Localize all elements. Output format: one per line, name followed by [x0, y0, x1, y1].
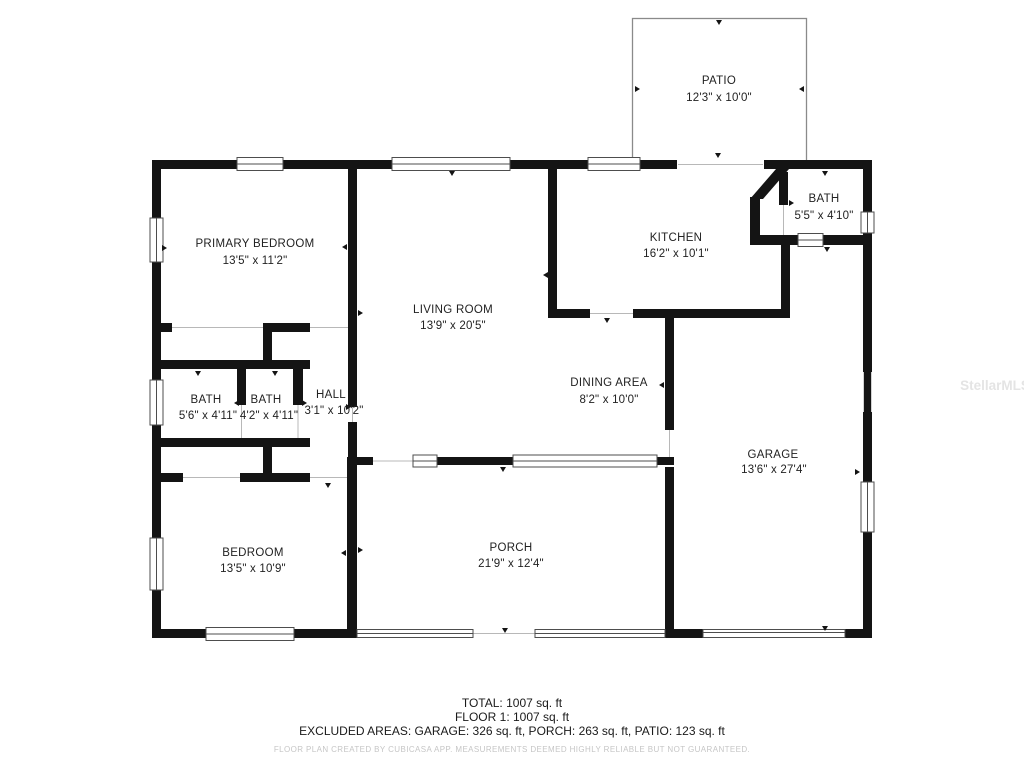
- wall-kitchen-ne: [750, 197, 760, 235]
- wall-porch-north-a: [437, 457, 513, 465]
- room-dims-living-room: 13'9" x 20'5": [420, 320, 486, 332]
- room-label-living-room: LIVING ROOM: [413, 304, 493, 316]
- window-kitchen-top: [588, 158, 640, 171]
- summary-excluded: EXCLUDED AREAS: GARAGE: 326 sq. ft, PORC…: [299, 724, 725, 738]
- wall-porch-north-stub: [357, 457, 373, 465]
- patio-outline: [633, 19, 807, 162]
- room-label-kitchen: KITCHEN: [650, 232, 703, 244]
- window-bath-left: [150, 380, 163, 425]
- room-label-primary-bedroom: PRIMARY BEDROOM: [195, 238, 314, 250]
- room-dims-bedroom: 13'5" x 10'9": [220, 563, 286, 575]
- room-label-hall: HALL: [316, 389, 346, 401]
- garage-door: [703, 630, 845, 638]
- room-dims-hall: 3'1" x 10'2": [304, 405, 363, 417]
- room-dims-bath-2: 4'2" x 4'11": [240, 410, 298, 422]
- wall-bath-divider: [237, 369, 246, 405]
- room-dims-bath-tr: 5'5" x 4'10": [794, 210, 853, 222]
- room-dims-dining-area: 8'2" x 10'0": [579, 394, 638, 406]
- room-label-garage: GARAGE: [747, 449, 798, 461]
- window-bath-tr-bottom: [798, 234, 823, 247]
- room-dims-porch: 21'9" x 12'4": [478, 558, 544, 570]
- wall-porch-west: [347, 457, 357, 629]
- area-summary: TOTAL: 1007 sq. ft FLOOR 1: 1007 sq. ft …: [274, 696, 750, 754]
- room-label-bath-1: BATH: [190, 394, 221, 406]
- window-living-top: [392, 158, 510, 171]
- floor-plan-page: PATIO 12'3" x 10'0" PRIMARY BEDROOM 13'5…: [0, 0, 1024, 768]
- room-label-porch: PORCH: [489, 542, 532, 554]
- wall-garage-west-lower: [665, 467, 674, 629]
- wall-garage-west-upper: [665, 313, 674, 430]
- room-label-bath-2: BATH: [250, 394, 281, 406]
- wall-hall-west: [293, 369, 303, 405]
- wall-kitchen-south-b: [633, 309, 790, 318]
- room-label-patio: PATIO: [702, 75, 736, 87]
- wall-bedroom-north-b: [240, 473, 310, 482]
- room-label-bath-tr: BATH: [808, 193, 839, 205]
- room-label-bedroom: BEDROOM: [222, 547, 284, 559]
- summary-total: TOTAL: 1007 sq. ft: [462, 696, 563, 710]
- wall-kitchen-south-a: [548, 309, 590, 318]
- stellar-mls-watermark: StellarMLS: [960, 378, 1024, 393]
- wall-bottom-garage-left: [665, 629, 703, 638]
- window-bath-tr-right: [861, 212, 874, 233]
- wall-baths-south: [152, 438, 310, 447]
- wall-living-west-lower: [348, 422, 357, 457]
- wall-bedroom-north-a: [152, 473, 183, 482]
- room-dims-garage: 13'6" x 27'4": [741, 464, 807, 476]
- window-pb-left: [150, 218, 163, 262]
- wall-living-west-upper: [348, 169, 357, 407]
- wall-garage-top-stub: [781, 245, 790, 318]
- summary-floor1: FLOOR 1: 1007 sq. ft: [455, 710, 570, 724]
- porch-screen-right: [535, 630, 665, 638]
- window-garage-right: [861, 482, 874, 532]
- window-pb-top: [237, 158, 283, 171]
- wall-porch-north-b: [657, 457, 674, 465]
- room-label-dining-area: DINING AREA: [570, 377, 647, 389]
- window-bedroom-bottom: [206, 628, 294, 641]
- room-dims-patio: 12'3" x 10'0": [686, 92, 752, 104]
- wall-pb-south-a: [152, 323, 172, 332]
- floor-plan-drawing: PATIO 12'3" x 10'0" PRIMARY BEDROOM 13'5…: [0, 0, 1024, 768]
- room-dims-bath-1: 5'6" x 4'11": [179, 410, 237, 422]
- window-porch-north-small: [413, 455, 437, 467]
- porch-screen-left: [357, 630, 473, 638]
- room-dims-kitchen: 16'2" x 10'1": [643, 248, 709, 260]
- wall-kitchen-west: [548, 169, 557, 318]
- window-bedroom-left: [150, 538, 163, 590]
- window-porch-north-long: [513, 455, 657, 467]
- wall-baths-north: [152, 360, 310, 369]
- footer-disclaimer: FLOOR PLAN CREATED BY CUBICASA APP. MEAS…: [274, 745, 750, 754]
- room-dims-primary-bedroom: 13'5" x 11'2": [223, 255, 288, 267]
- wall-bottom-garage-right: [845, 629, 872, 638]
